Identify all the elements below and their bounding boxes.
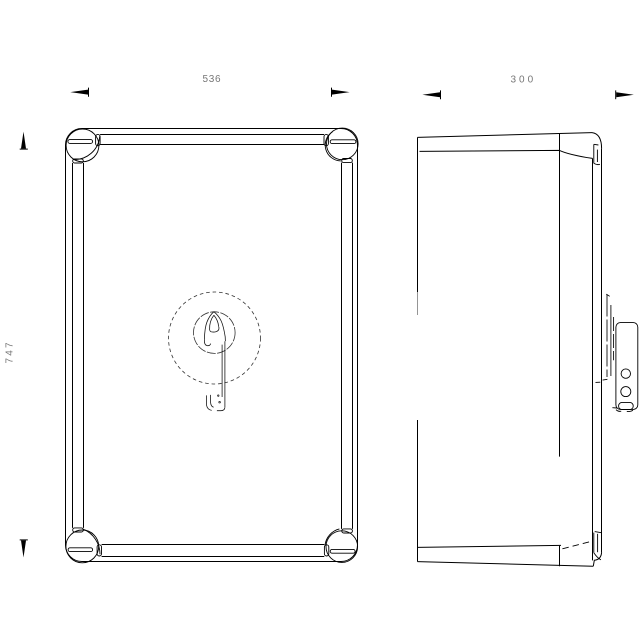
svg-text:536: 536 — [203, 74, 222, 85]
svg-text:747: 747 — [4, 340, 15, 363]
svg-text:300: 300 — [511, 75, 537, 86]
